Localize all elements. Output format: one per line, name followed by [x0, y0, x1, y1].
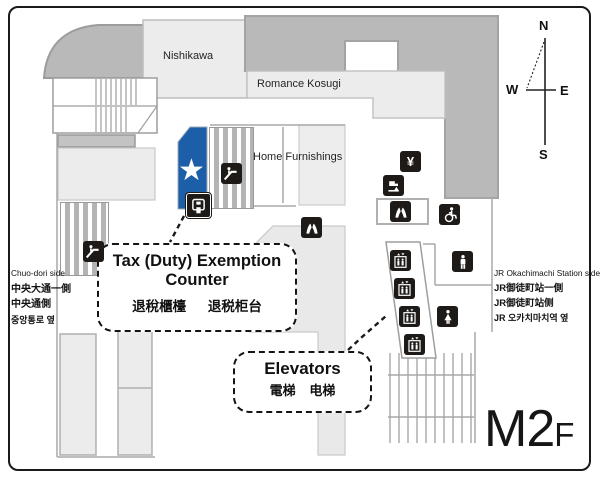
- floor-indicator-suffix: F: [554, 418, 573, 451]
- tax-callout-title-line2: Counter: [99, 271, 295, 290]
- compass-north-label: N: [539, 18, 548, 33]
- elevators-callout-cjk: 電梯 电梯: [235, 380, 370, 399]
- tax-callout-zh-cn: 退税柜台: [208, 299, 262, 314]
- hand-washing-icon: [390, 201, 411, 222]
- home-furnishings-label: Home Furnishings: [253, 151, 342, 163]
- compass-east-label: E: [560, 83, 569, 98]
- floor-map: Tax (Duty) Exemption Counter 退稅櫃檯 退税柜台 E…: [0, 0, 600, 480]
- chuo-dori-zh-tw: 中央大通一側: [11, 282, 71, 298]
- currency-symbol: ¥: [407, 155, 414, 168]
- elevator-icon: [390, 250, 411, 271]
- elevators-zh-cn: 电梯: [309, 383, 335, 398]
- tax-exemption-callout: Tax (Duty) Exemption Counter 退稅櫃檯 退税柜台: [97, 243, 297, 332]
- mens-restroom-icon: [452, 251, 473, 272]
- chuo-dori-side-label: Chuo-dori side 中央大通一側 中央通側 중앙통로 옆: [11, 266, 71, 328]
- tax-callout-title-line1: Tax (Duty) Exemption: [99, 252, 295, 271]
- chuo-dori-en: Chuo-dori side: [11, 266, 71, 282]
- hand-washing-icon: [301, 217, 322, 238]
- escalator-icon: [83, 241, 104, 262]
- jr-station-ko: JR 오카치마치역 옆: [494, 311, 600, 326]
- jr-station-en: JR Okachimachi Station side: [494, 266, 600, 281]
- drinking-fountain-icon: [383, 175, 404, 196]
- floor-indicator: M2 F: [484, 403, 573, 455]
- floor-indicator-main: M2: [484, 403, 554, 455]
- compass-south-label: S: [539, 147, 548, 162]
- jr-station-side-label: JR Okachimachi Station side JR御徒町站一側 JR御…: [494, 266, 600, 326]
- nishikawa-label: Nishikawa: [163, 50, 213, 62]
- chuo-dori-zh-cn: 中央通側: [11, 297, 71, 313]
- chuo-dori-ko: 중앙통로 옆: [11, 313, 71, 329]
- womens-restroom-icon: [437, 306, 458, 327]
- escalator-icon: [221, 163, 242, 184]
- star-marker: ★: [178, 156, 205, 186]
- wheelchair-accessible-icon: [439, 204, 460, 225]
- currency-exchange-icon: ¥: [400, 151, 421, 172]
- romance-kosugi-label: Romance Kosugi: [257, 78, 341, 90]
- elevators-callout-title: Elevators: [235, 359, 370, 378]
- tax-callout-zh-tw: 退稅櫃檯: [132, 299, 186, 314]
- elevator-icon: [394, 278, 415, 299]
- elevator-icon: [404, 334, 425, 355]
- elevators-zh-tw: 電梯: [270, 383, 296, 398]
- jr-station-zh-tw: JR御徒町站一側: [494, 281, 600, 296]
- tax-callout-cjk: 退稅櫃檯 退税柜台: [99, 295, 295, 315]
- jr-station-zh-cn: JR御徒町站侧: [494, 296, 600, 311]
- elevators-callout: Elevators 電梯 电梯: [233, 351, 372, 413]
- elevator-icon: [399, 306, 420, 327]
- compass-west-label: W: [506, 82, 518, 97]
- tax-refund-machine-icon: [186, 193, 211, 218]
